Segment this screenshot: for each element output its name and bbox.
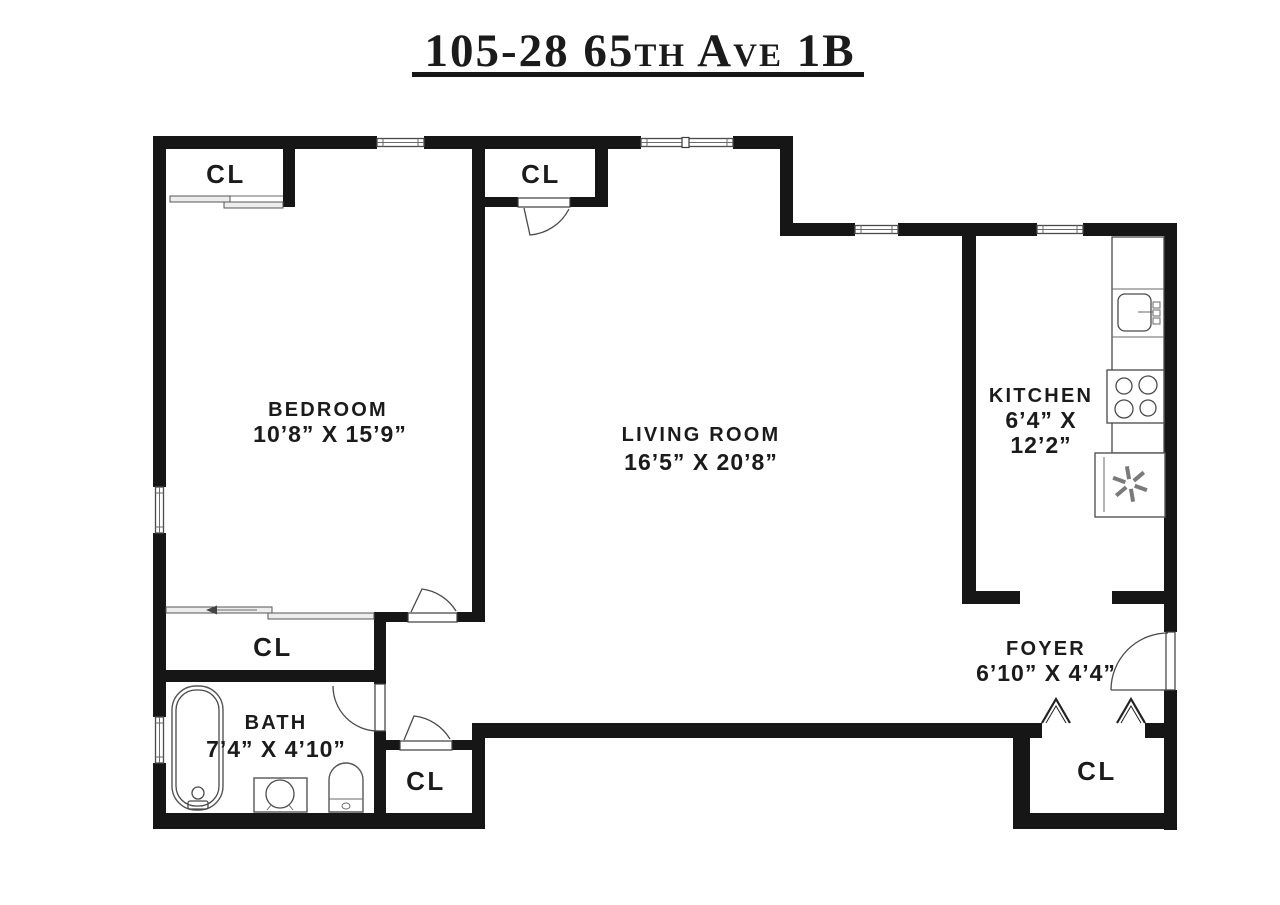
wall-segment <box>485 197 518 207</box>
bath-door <box>333 684 385 731</box>
floor-plan-page: 105-28 65th Ave 1B <box>0 0 1280 905</box>
wall-segment <box>472 136 485 622</box>
wall-segment <box>570 197 595 207</box>
wall-segment <box>452 740 472 750</box>
wall-segment <box>1013 813 1177 829</box>
wall-segment <box>962 591 1020 604</box>
wall-segment <box>1164 690 1177 830</box>
window <box>153 487 166 533</box>
bath-label: BATH <box>245 712 308 734</box>
entry-door <box>1111 632 1175 690</box>
wall-segment <box>457 612 472 622</box>
wall-segment <box>898 223 1037 236</box>
wall-segment <box>1112 591 1164 604</box>
vanity-sink-icon <box>254 778 307 812</box>
kitchen-dimensions-line2: 12’2” <box>1010 432 1071 458</box>
bedroom-dimensions: 10’8” X 15’9” <box>253 421 407 447</box>
room-labels: BEDROOM 10’8” X 15’9” LIVING ROOM 16’5” … <box>206 159 1117 796</box>
bath-dimensions: 7’4” X 4’10” <box>206 736 346 762</box>
toilet-icon <box>329 763 363 812</box>
foyer-closet-label: CL <box>1077 756 1117 786</box>
wall-segment <box>374 731 386 813</box>
wall-segment <box>472 723 485 829</box>
wall-segment <box>153 533 166 717</box>
window <box>153 717 166 763</box>
sliding-door <box>170 196 283 208</box>
hall-closet-label: CL <box>253 632 293 662</box>
kitchen-fixtures <box>1095 237 1165 517</box>
wall-segment <box>153 813 485 829</box>
wall-segment <box>962 236 976 604</box>
foyer-label: FOYER <box>1006 638 1086 660</box>
living-room-dimensions: 16’5” X 20’8” <box>624 449 778 475</box>
bedroom-label: BEDROOM <box>268 399 388 421</box>
kitchen-dimensions-line1: 6’4” X <box>1005 407 1076 433</box>
window <box>641 136 733 149</box>
window <box>377 136 424 149</box>
kitchen-sink-icon <box>1118 294 1160 331</box>
bedroom-door <box>408 589 457 622</box>
living-room-label: LIVING ROOM <box>622 424 781 446</box>
bifold-door <box>1042 699 1145 723</box>
bedroom-closet-label: CL <box>206 159 246 189</box>
wall-segment <box>780 223 855 236</box>
wall-segment <box>386 740 400 750</box>
refrigerator-icon <box>1095 453 1165 517</box>
living-room-closet-label: CL <box>521 159 561 189</box>
foyer-dimensions: 6’10” X 4’4” <box>976 660 1116 686</box>
wall-segment <box>153 136 166 487</box>
floor-plan-drawing: 105-28 65th Ave 1B <box>0 0 1280 905</box>
closet-door <box>518 198 570 235</box>
wall-segment <box>153 670 386 682</box>
window <box>1037 223 1083 236</box>
wall-segment <box>1164 223 1177 632</box>
closet-door <box>400 716 452 750</box>
stove-icon <box>1107 370 1164 423</box>
wall-segment <box>1145 723 1164 738</box>
wall-segment <box>153 136 377 149</box>
vestibule-closet-label: CL <box>406 766 446 796</box>
window <box>855 223 898 236</box>
title-underline <box>412 72 864 77</box>
plan-title: 105-28 65th Ave 1B <box>424 25 855 77</box>
wall-segment <box>595 136 608 207</box>
wall-segment <box>1013 723 1042 738</box>
kitchen-label: KITCHEN <box>989 385 1093 407</box>
wall-segment <box>424 136 641 149</box>
sliding-door <box>166 606 374 620</box>
wall-segment <box>1083 223 1177 236</box>
wall-segment <box>283 136 295 207</box>
wall-segment <box>780 136 793 236</box>
wall-segment <box>472 723 1042 738</box>
